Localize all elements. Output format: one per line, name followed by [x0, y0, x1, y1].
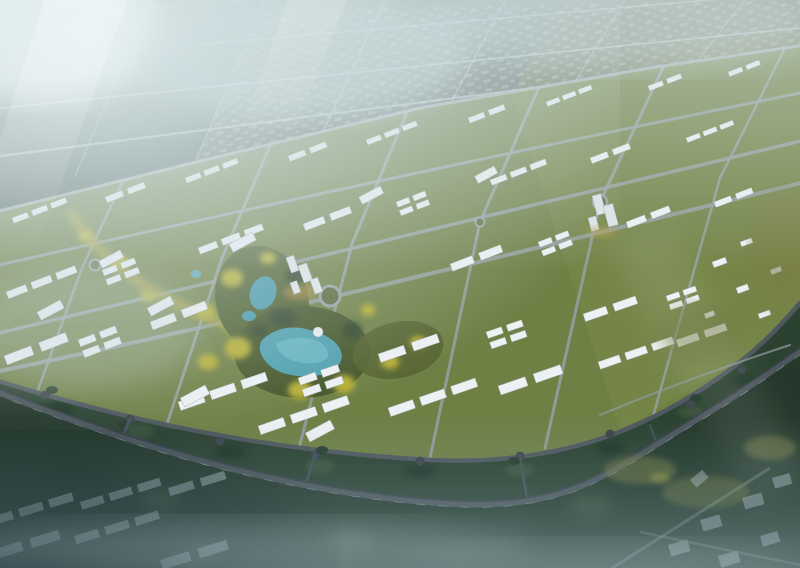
masterplan-scene: [0, 0, 800, 568]
aerial-render-image: [0, 0, 800, 568]
atmosphere-overlay: [0, 0, 800, 568]
